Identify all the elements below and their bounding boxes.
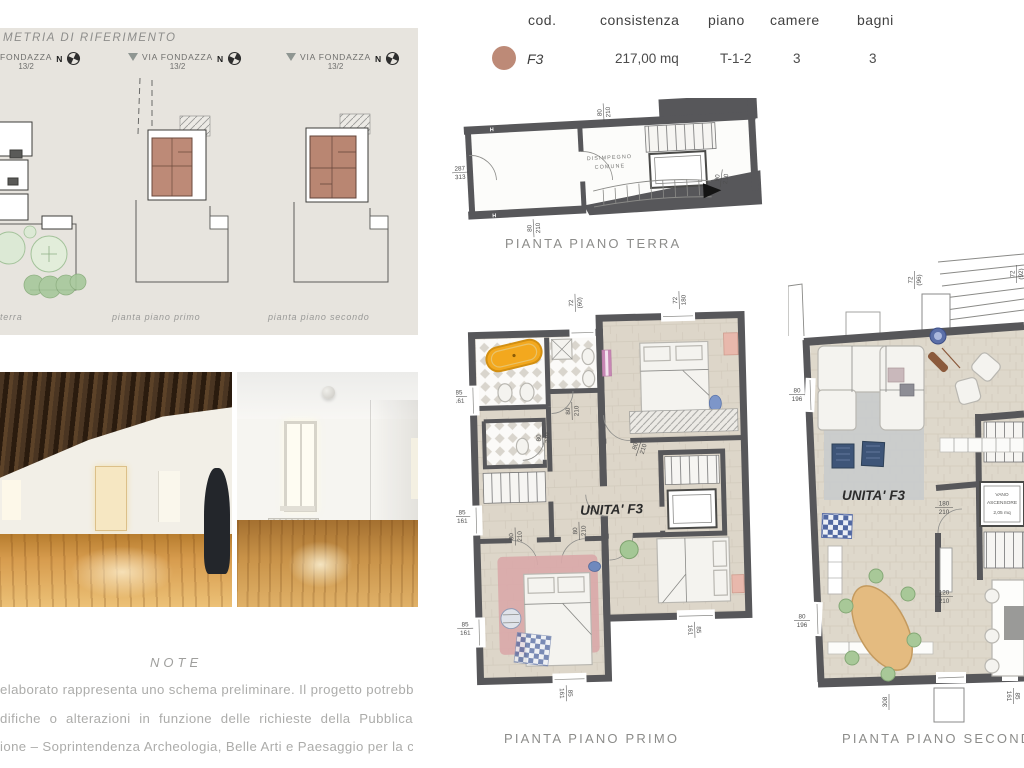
svg-text:180: 180 (680, 294, 687, 305)
caption-piano-primo: PIANTA PIANO PRIMO (504, 731, 679, 746)
unit-label: UNITA' F3 (580, 501, 644, 518)
svg-text:161: 161 (456, 398, 465, 405)
interior-photo-room (237, 372, 418, 607)
dim-label: 80196 (789, 388, 805, 404)
compass-icon (66, 51, 81, 66)
svg-text:161: 161 (457, 518, 468, 525)
location-triangle-icon (128, 53, 138, 61)
unit-code: F3 (527, 51, 543, 67)
svg-text:80: 80 (572, 527, 579, 535)
svg-text:210: 210 (535, 222, 543, 233)
svg-text:85: 85 (459, 509, 467, 516)
svg-text:196: 196 (797, 622, 808, 629)
svg-text:85: 85 (456, 389, 463, 396)
svg-text:(60): (60) (577, 297, 584, 308)
window (284, 421, 317, 512)
compass-icon (227, 51, 242, 66)
street-label: FONDAZZA (0, 52, 52, 62)
brochure-page: METRIA DI RIFERIMENTO FONDAZZA 13/2 N VI… (0, 0, 1024, 768)
window-sill (280, 506, 314, 511)
svg-text:85: 85 (566, 690, 573, 698)
note-line: na di Bologna e del Comune di Bologna. (0, 762, 413, 768)
dim-label: 72(60) (568, 294, 584, 312)
svg-text:85: 85 (695, 626, 702, 634)
doorway (158, 471, 180, 523)
svg-text:72: 72 (908, 276, 915, 284)
table-header-bagni: bagni (857, 12, 894, 28)
floor-reflection (288, 541, 353, 588)
floor-plan-primo: UNITA' F3 72(60) 72180 85161 85161 85161… (456, 286, 768, 738)
dim-label: 72(92) (1010, 265, 1024, 283)
site-plan-secondo (276, 76, 408, 316)
dim-label: 85161 (457, 621, 473, 637)
svg-text:210: 210 (544, 432, 551, 443)
wall-marker: H (492, 213, 496, 219)
svg-text:161: 161 (1005, 691, 1012, 702)
unit-bedrooms: 3 (793, 51, 801, 66)
dim-label: 85161 (558, 685, 574, 701)
svg-text:72: 72 (1010, 270, 1017, 278)
north-label: N (217, 54, 223, 64)
dim-label: 72(96) (908, 271, 924, 289)
unit-area: 217,00 mq (615, 51, 679, 66)
caption-piano-terra: PIANTA PIANO TERRA (505, 236, 681, 251)
svg-text:161: 161 (460, 630, 471, 637)
dim-label: 80196 (794, 614, 810, 630)
north-label: N (56, 54, 62, 64)
svg-text:90: 90 (714, 174, 722, 182)
civic-number: 13/2 (18, 62, 34, 72)
dim-label: 85161 (1005, 688, 1021, 704)
site-header-primo: VIA FONDAZZA 13/2 N (128, 52, 242, 72)
svg-text:287: 287 (454, 165, 465, 173)
note-paragraph: elaborato rappresenta uno schema prelimi… (0, 676, 413, 768)
svg-text:80: 80 (565, 407, 572, 415)
window-light (2, 480, 21, 520)
svg-text:(92): (92) (1018, 268, 1024, 279)
lit-doorway (95, 466, 127, 531)
svg-text:(96): (96) (916, 274, 923, 285)
svg-text:308: 308 (882, 696, 889, 707)
wall-marker: H (490, 127, 494, 133)
site-header-secondo: VIA FONDAZZA 13/2 N (286, 52, 400, 72)
svg-text:210: 210 (722, 173, 730, 185)
svg-text:161: 161 (686, 625, 693, 636)
svg-text:120: 120 (939, 590, 950, 597)
svg-text:196: 196 (792, 396, 803, 403)
svg-text:161: 161 (558, 688, 565, 699)
site-plan-primo (118, 76, 250, 316)
svg-text:72: 72 (672, 296, 679, 304)
dim-label: 85161 (686, 622, 702, 638)
site-plan-terra (0, 120, 115, 312)
window-sliver (411, 438, 418, 499)
svg-text:72: 72 (568, 299, 575, 307)
north-label: N (375, 54, 381, 64)
note-line: ione – Soprintendenza Archeologia, Belle… (0, 733, 413, 762)
table-header-camere: camere (770, 12, 820, 28)
table-header-piano: piano (708, 12, 745, 28)
unit-label: UNITA' F3 (842, 488, 905, 503)
dim-label: 80210 (596, 103, 612, 122)
svg-text:80: 80 (536, 434, 543, 442)
svg-text:85: 85 (461, 621, 469, 628)
unit-floors: T-1-2 (720, 51, 752, 66)
note-line: difiche o alterazioni in funzione delle … (0, 705, 413, 734)
dim-label: 80210 (526, 219, 542, 238)
civic-number: 13/2 (328, 62, 344, 72)
floor-reflection (70, 546, 174, 598)
mini-caption-terra: terra (0, 312, 23, 322)
svg-text:80: 80 (596, 108, 603, 116)
elevator-label: ASCENSORE (987, 500, 1017, 506)
svg-text:210: 210 (605, 106, 613, 117)
reference-plan-panel: METRIA DI RIFERIMENTO FONDAZZA 13/2 N VI… (0, 28, 418, 335)
street-label: VIA FONDAZZA (142, 52, 213, 62)
street-label: VIA FONDAZZA (300, 52, 371, 62)
table-header-cod: cod. (528, 12, 556, 28)
svg-text:313: 313 (455, 174, 466, 182)
elevator-label: 2,05 mq (993, 510, 1011, 516)
note-heading: NOTE (150, 655, 202, 670)
compass-icon (385, 51, 400, 66)
unit-color-marker (492, 46, 516, 70)
svg-text:210: 210 (939, 509, 950, 516)
floor-plan-terra: H H DISIMPEGNO COMUNE 287313 80210 80210… (452, 98, 774, 250)
note-line: elaborato rappresenta uno schema prelimi… (0, 676, 413, 705)
elevator-label: VANO (995, 492, 1009, 498)
civic-number: 13/2 (170, 62, 186, 72)
mini-caption-secondo: pianta piano secondo (268, 312, 370, 322)
svg-text:80: 80 (798, 614, 806, 621)
svg-text:85: 85 (1014, 692, 1021, 700)
svg-text:80: 80 (508, 533, 515, 541)
svg-text:80: 80 (793, 388, 801, 395)
location-triangle-icon (286, 53, 296, 61)
dim-label: 85161 (456, 509, 470, 525)
svg-text:210: 210 (580, 525, 587, 536)
interior-photo-attic (0, 372, 232, 607)
dark-figure (204, 468, 230, 574)
panel-title: METRIA DI RIFERIMENTO (3, 32, 177, 44)
unit-bathrooms: 3 (869, 51, 877, 66)
svg-text:210: 210 (939, 598, 950, 605)
table-header-consistenza: consistenza (600, 12, 679, 28)
dim-label: 72180 (672, 291, 688, 309)
floor-plan-secondo: VANO ASCENSORE 2,05 mq UNITA' F3 72(96) … (788, 250, 1024, 730)
dim-label: 308 (882, 694, 889, 710)
site-header-terra: FONDAZZA 13/2 N (0, 52, 81, 72)
svg-text:80: 80 (526, 224, 533, 232)
svg-text:210: 210 (517, 531, 524, 542)
mini-caption-primo: pianta piano primo (112, 312, 200, 322)
svg-text:180: 180 (939, 501, 950, 508)
dim-label: 85161 (456, 389, 467, 405)
svg-text:210: 210 (573, 405, 580, 416)
caption-piano-secondo: PIANTA PIANO SECONDO (842, 731, 1024, 746)
